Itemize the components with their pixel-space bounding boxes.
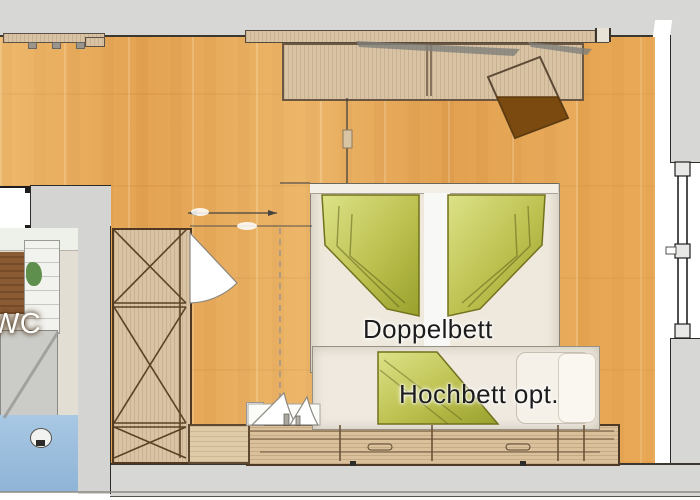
bench-end-block bbox=[188, 424, 250, 464]
wardrobe-rail-end bbox=[595, 28, 611, 42]
loft-bed-pillow bbox=[558, 353, 596, 423]
wc-wood-panel bbox=[0, 252, 26, 314]
closet-cabinet bbox=[112, 228, 192, 464]
wc-floor bbox=[0, 415, 78, 492]
white-slab bbox=[246, 402, 264, 426]
wall-rail-join bbox=[85, 37, 105, 47]
floor-plan: Doppelbett Hochbett opt. WC bbox=[0, 0, 700, 500]
wc-wall-top bbox=[30, 185, 111, 230]
wc-fixture-detail bbox=[36, 440, 45, 446]
wardrobe-top-rail bbox=[245, 30, 609, 43]
rail-bracket bbox=[52, 42, 61, 49]
wc-label: WC bbox=[0, 308, 41, 341]
right-wall-upper bbox=[670, 35, 700, 163]
rail-bracket bbox=[76, 42, 85, 49]
wc-room bbox=[0, 228, 78, 492]
door-jamb bbox=[25, 188, 30, 193]
sideboard-bench bbox=[246, 424, 620, 466]
wc-cabinet bbox=[0, 330, 58, 428]
wardrobe bbox=[282, 43, 584, 101]
wc-wall-side bbox=[78, 226, 111, 494]
wc-plant bbox=[26, 262, 42, 286]
bottom-wall bbox=[110, 463, 700, 497]
door-opening bbox=[0, 186, 30, 232]
double-bed-label: Doppelbett bbox=[363, 314, 493, 345]
loft-bed-label: Hochbett opt. bbox=[399, 379, 559, 410]
rail-bracket bbox=[28, 42, 37, 49]
right-wall-lower bbox=[670, 338, 700, 464]
